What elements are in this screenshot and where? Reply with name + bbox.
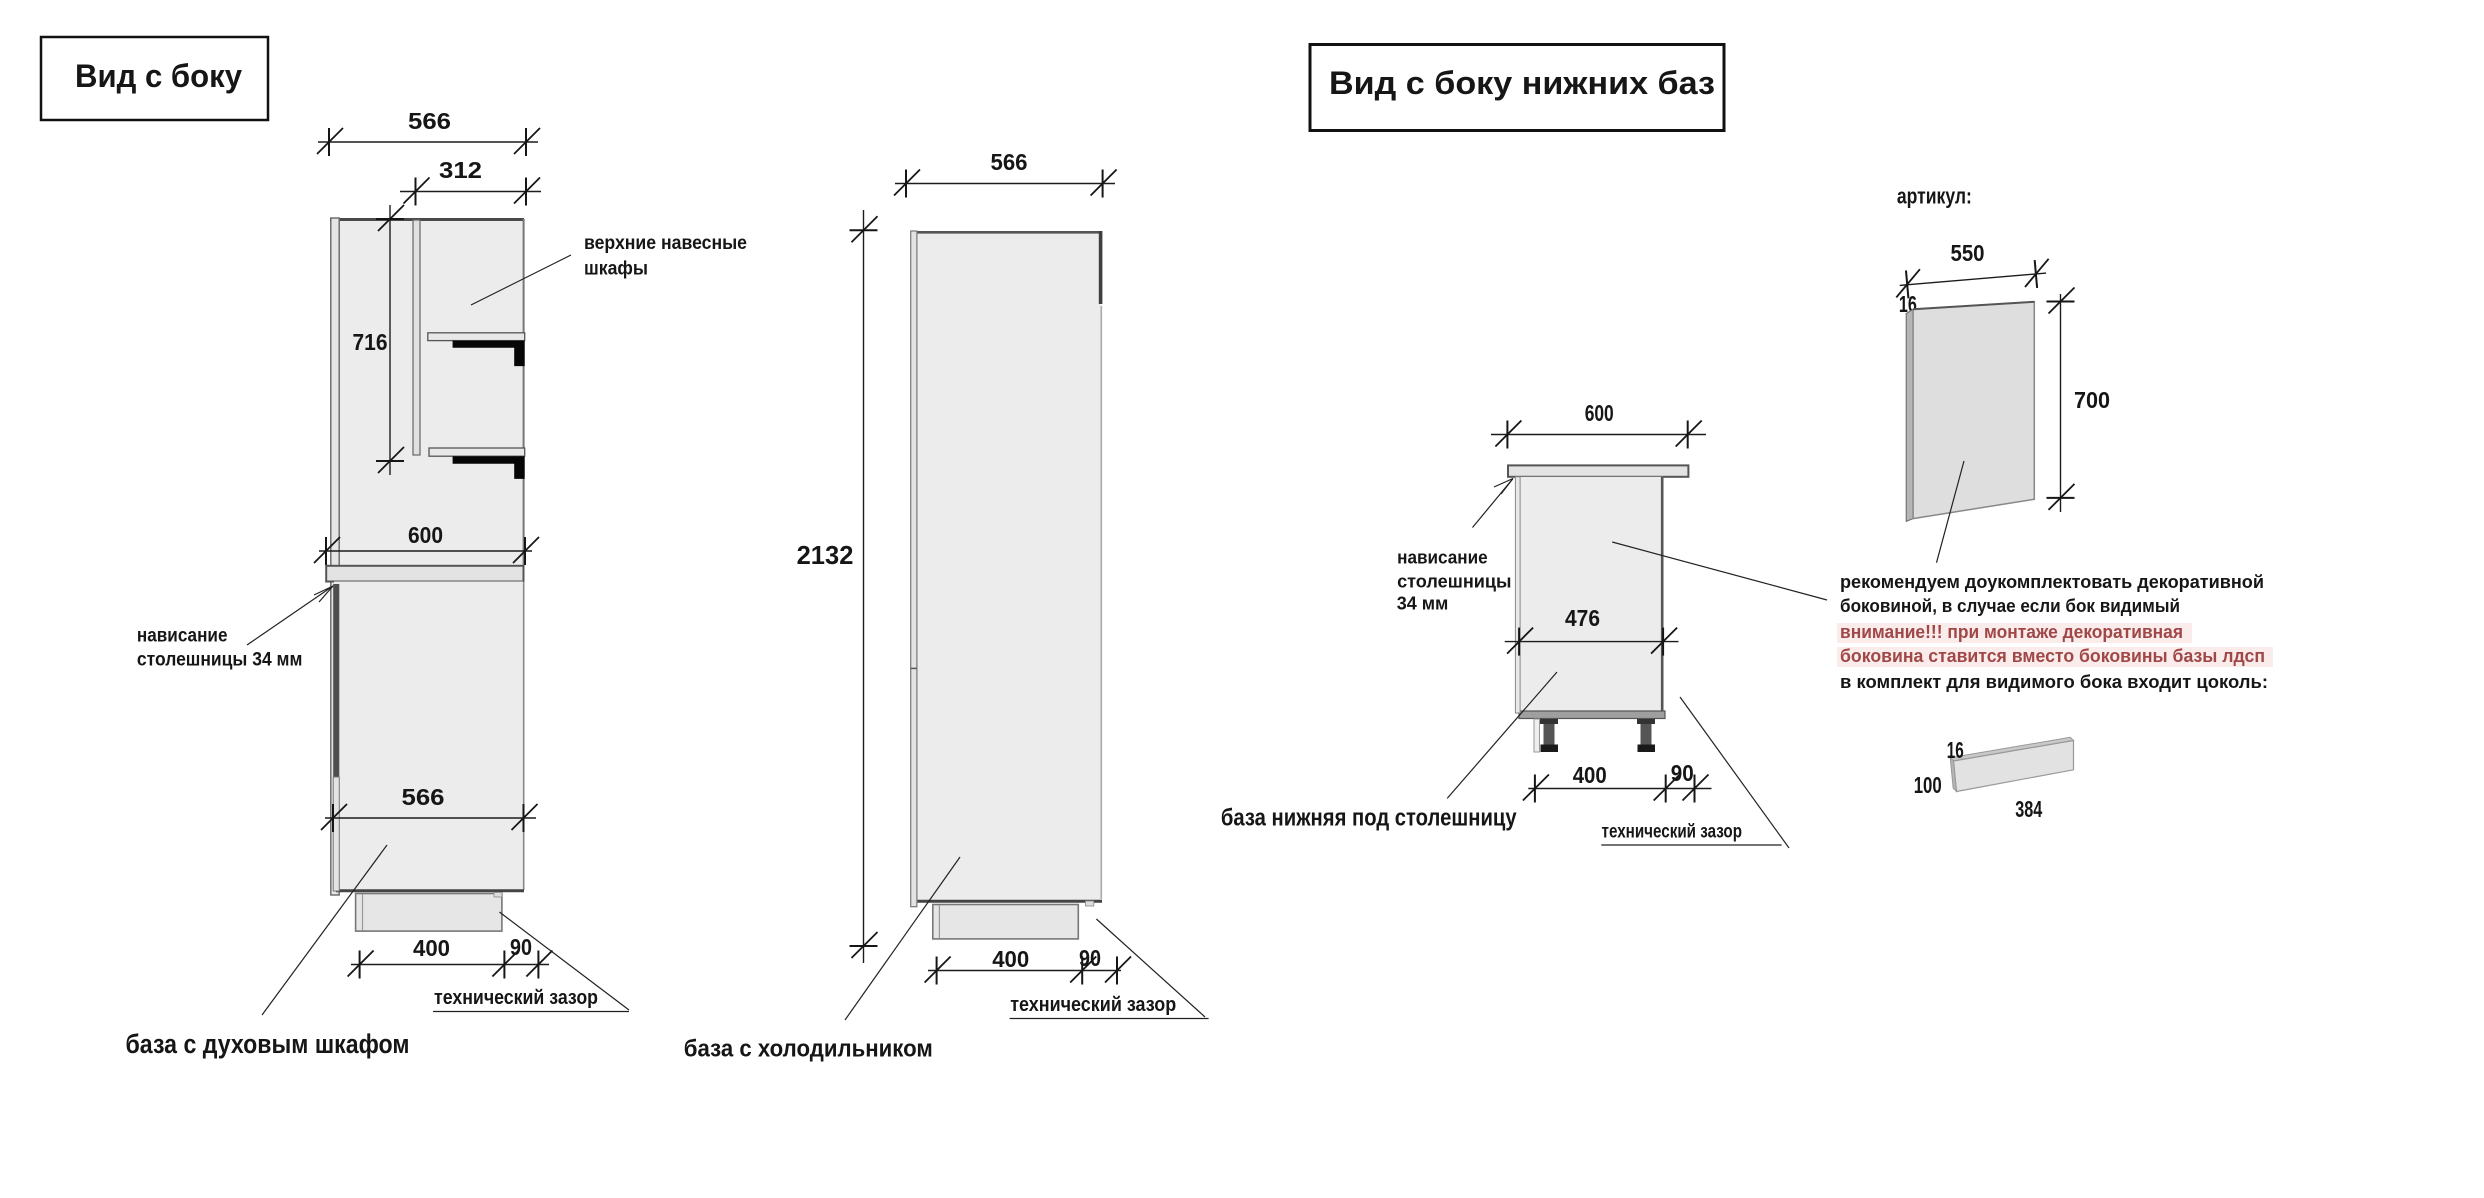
svg-text:Вид с боку: Вид с боку [75, 58, 242, 94]
svg-text:артикул:: артикул: [1897, 184, 1972, 209]
svg-text:технический зазор: технический зазор [434, 987, 598, 1009]
svg-text:Вид с боку нижних баз: Вид с боку нижних баз [1329, 65, 1715, 101]
svg-text:384: 384 [2015, 796, 2042, 822]
svg-text:технический зазор: технический зазор [1010, 994, 1176, 1016]
svg-text:столешницы: столешницы [1397, 572, 1511, 592]
svg-text:боковина ставится вместо боков: боковина ставится вместо боковины базы л… [1840, 646, 2265, 666]
svg-text:2132: 2132 [797, 542, 854, 570]
svg-text:шкафы: шкафы [584, 259, 648, 280]
svg-text:600: 600 [1585, 400, 1614, 426]
svg-text:100: 100 [1914, 772, 1942, 798]
svg-text:34 мм: 34 мм [1397, 594, 1449, 614]
svg-text:боковиной, в случае если бок в: боковиной, в случае если бок видимый [1840, 596, 2180, 616]
svg-text:566: 566 [402, 784, 445, 810]
svg-text:нависание: нависание [137, 626, 228, 647]
svg-text:550: 550 [1951, 240, 1985, 266]
svg-text:нависание: нависание [1397, 548, 1488, 568]
svg-text:566: 566 [991, 149, 1028, 175]
svg-text:566: 566 [408, 108, 451, 134]
svg-text:16: 16 [1947, 737, 1964, 763]
svg-text:476: 476 [1565, 605, 1600, 631]
svg-text:716: 716 [353, 329, 388, 355]
svg-text:база с духовым шкафом: база с духовым шкафом [126, 1029, 410, 1059]
svg-text:база нижняя под столешницу: база нижняя под столешницу [1221, 805, 1517, 832]
svg-text:90: 90 [1671, 760, 1694, 786]
svg-text:400: 400 [413, 935, 450, 961]
svg-text:400: 400 [1573, 762, 1607, 788]
svg-text:рекомендуем доукомплектовать д: рекомендуем доукомплектовать декоративно… [1840, 572, 2264, 592]
svg-text:700: 700 [2074, 387, 2110, 413]
svg-text:верхние навесные: верхние навесные [584, 233, 747, 254]
svg-text:столешницы 34 мм: столешницы 34 мм [137, 650, 303, 671]
svg-text:в комплект для видимого бока в: в комплект для видимого бока входит цоко… [1840, 672, 2268, 692]
svg-text:600: 600 [408, 522, 443, 548]
svg-text:внимание!!! при монтаже декора: внимание!!! при монтаже декоративная [1840, 622, 2183, 642]
svg-text:база с холодильником: база с холодильником [684, 1036, 933, 1063]
svg-text:400: 400 [992, 946, 1029, 972]
svg-text:312: 312 [439, 157, 482, 183]
svg-text:технический зазор: технический зазор [1602, 822, 1743, 843]
